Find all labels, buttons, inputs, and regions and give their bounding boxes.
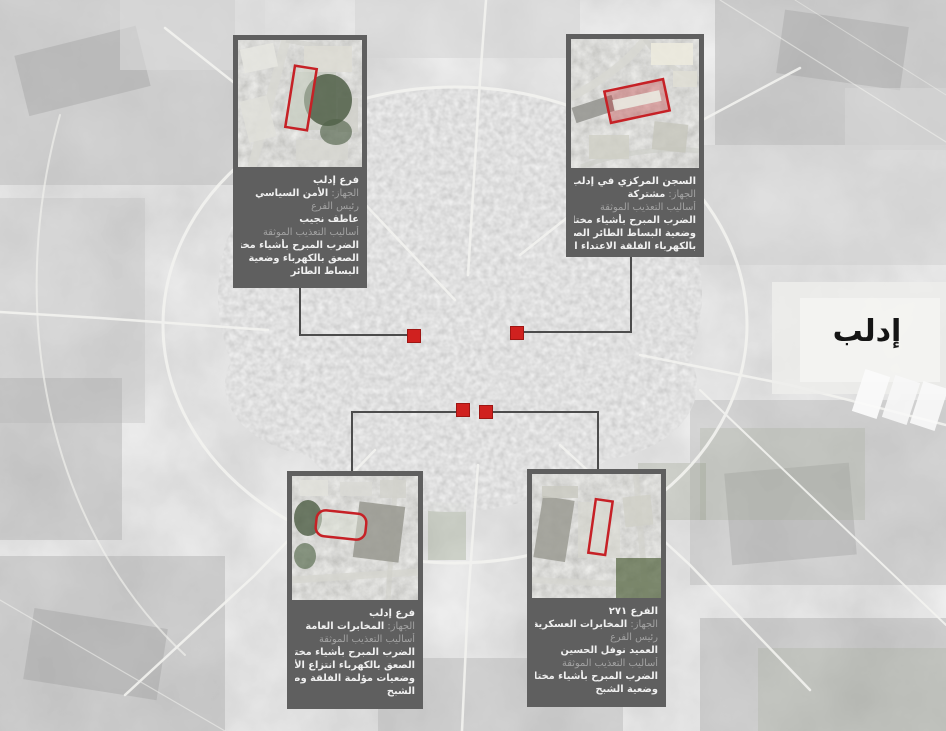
inset-satellite-photo bbox=[292, 476, 418, 600]
facility-name: فرع إدلب bbox=[295, 607, 415, 620]
facility-name: السجن المركزي في إدلب bbox=[574, 175, 696, 188]
inset-satellite-photo bbox=[238, 40, 362, 167]
method-line: وضعية البساط الطائر الصعق bbox=[574, 227, 696, 240]
head-name: العميد نوفل الحسين bbox=[535, 644, 658, 657]
method-line: الضرب المبرح بأشياء مختلفة bbox=[535, 670, 658, 683]
methods-label: أساليب التعذيب الموثقة bbox=[574, 201, 696, 214]
agency-line: الجهاز: مشتركة bbox=[574, 188, 696, 201]
leader-line-bottom-right-vertical bbox=[597, 411, 599, 469]
methods-label: أساليب التعذيب الموثقة bbox=[295, 633, 415, 646]
leader-line-bottom-left-vertical bbox=[351, 411, 353, 471]
head-label: رئيس الفرع bbox=[535, 631, 658, 644]
leader-line-top-right-horizontal bbox=[522, 331, 632, 333]
callout-central-prison: السجن المركزي في إدلب الجهاز: مشتركة أسا… bbox=[566, 34, 704, 257]
agency-label: الجهاز: bbox=[331, 188, 359, 199]
facility-marker-central-prison bbox=[510, 326, 524, 340]
agency-line: الجهاز: المخابرات العسكرية bbox=[535, 618, 658, 631]
method-line: الصعق بالكهرباء وضعية bbox=[241, 252, 359, 265]
head-label: رئيس الفرع bbox=[241, 200, 359, 213]
methods-label: أساليب التعذيب الموثقة bbox=[241, 226, 359, 239]
head-name: عاطف نجيب bbox=[241, 213, 359, 226]
satellite-map bbox=[0, 0, 946, 731]
callout-caption: فرع إدلب الجهاز: المخابرات العامة أساليب… bbox=[292, 607, 418, 698]
callout-caption: الفرع ٢٧١ الجهاز: المخابرات العسكرية رئي… bbox=[532, 605, 661, 696]
method-line: وضعية الشبح bbox=[535, 683, 658, 696]
agency-line: الجهاز: المخابرات العامة bbox=[295, 620, 415, 633]
method-line: وضعيات مؤلمة الفلقة وضعية bbox=[295, 672, 415, 685]
method-line: الضرب المبرح بأشياء مختلفة bbox=[241, 239, 359, 252]
agency-line: الجهاز: الأمن السياسي bbox=[241, 187, 359, 200]
agency-value: المخابرات العسكرية bbox=[535, 619, 627, 630]
agency-label: الجهاز: bbox=[630, 619, 658, 630]
highlighted-building-outline bbox=[315, 509, 367, 540]
method-line: الشبح bbox=[295, 685, 415, 698]
facility-marker-general-intelligence bbox=[456, 403, 470, 417]
callout-general-intelligence-branch: فرع إدلب الجهاز: المخابرات العامة أساليب… bbox=[287, 471, 423, 709]
agency-value: الأمن السياسي bbox=[255, 188, 328, 199]
callout-political-security-branch: فرع إدلب الجهاز: الأمن السياسي رئيس الفر… bbox=[233, 35, 367, 288]
leader-line-top-left-vertical bbox=[299, 288, 301, 336]
facility-name: الفرع ٢٧١ bbox=[535, 605, 658, 618]
method-line: بالكهرباء الفلقة الاعتداء الجنسي bbox=[574, 240, 696, 253]
city-label: إدلب bbox=[812, 314, 922, 349]
callout-branch-271: الفرع ٢٧١ الجهاز: المخابرات العسكرية رئي… bbox=[527, 469, 666, 707]
agency-label: الجهاز: bbox=[387, 621, 415, 632]
leader-line-bottom-right-horizontal bbox=[491, 411, 599, 413]
leader-line-top-left-horizontal bbox=[299, 334, 409, 336]
methods-label: أساليب التعذيب الموثقة bbox=[535, 657, 658, 670]
agency-value: مشتركة bbox=[628, 189, 666, 200]
leader-line-top-right-vertical bbox=[630, 257, 632, 333]
callout-caption: السجن المركزي في إدلب الجهاز: مشتركة أسا… bbox=[571, 175, 699, 253]
idlib-detention-map-figure: إدلب فرع إدلب الجهاز: الأمن السياسي bbox=[0, 0, 946, 731]
facility-name: فرع إدلب bbox=[241, 174, 359, 187]
leader-line-bottom-left-horizontal bbox=[351, 411, 459, 413]
agency-value: المخابرات العامة bbox=[305, 621, 384, 632]
inset-satellite-photo bbox=[532, 474, 661, 598]
method-line: البساط الطائر bbox=[241, 265, 359, 278]
facility-marker-political-security bbox=[407, 329, 421, 343]
method-line: الضرب المبرح بأشياء مختلفة bbox=[295, 646, 415, 659]
method-line: الصعق بالكهرباء انتزاع الأظافر bbox=[295, 659, 415, 672]
callout-caption: فرع إدلب الجهاز: الأمن السياسي رئيس الفر… bbox=[238, 174, 362, 278]
agency-label: الجهاز: bbox=[668, 189, 696, 200]
inset-satellite-photo bbox=[571, 39, 699, 168]
facility-marker-branch-271 bbox=[479, 405, 493, 419]
method-line: الضرب المبرح بأشياء مختلفة bbox=[574, 214, 696, 227]
